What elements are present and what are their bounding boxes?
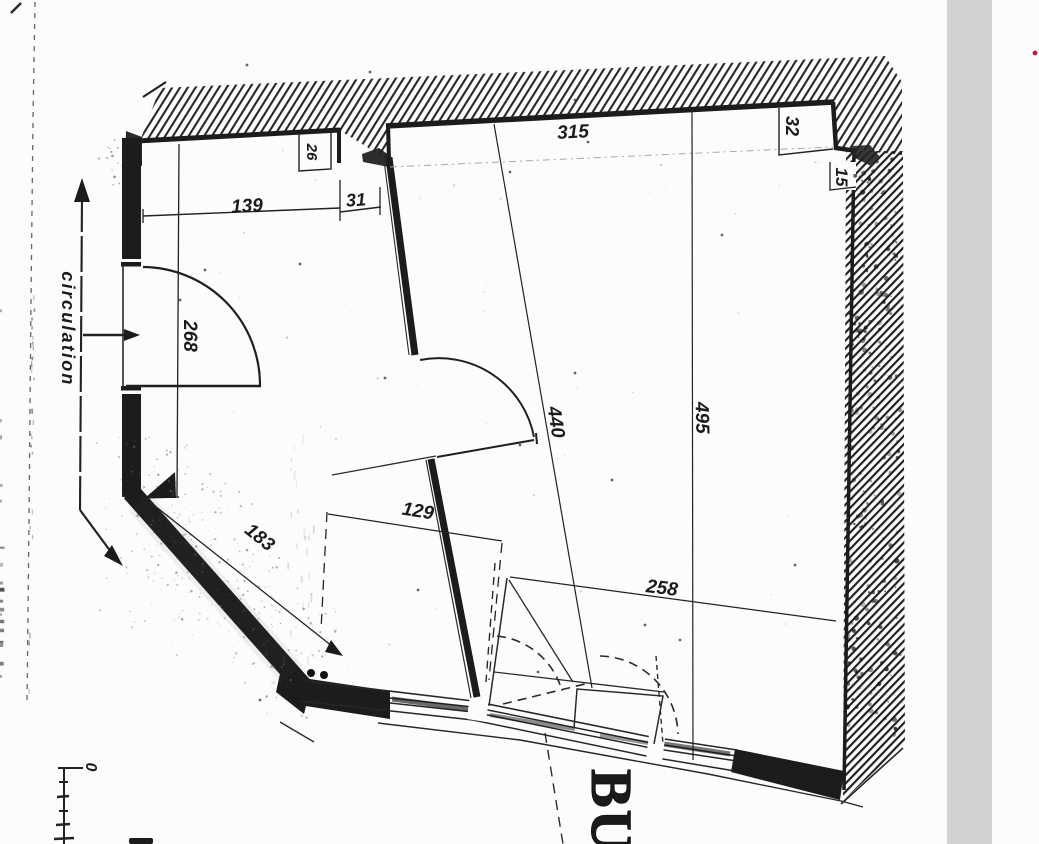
svg-text:315: 315 — [557, 121, 590, 144]
svg-text:268: 268 — [179, 319, 200, 352]
svg-text:BU: BU — [579, 769, 644, 844]
svg-text:26: 26 — [303, 143, 320, 161]
svg-text:circulation: circulation — [58, 271, 78, 386]
svg-text:258: 258 — [644, 576, 679, 601]
svg-text:495: 495 — [690, 401, 712, 435]
svg-text:0: 0 — [82, 763, 99, 772]
svg-text:139: 139 — [231, 195, 264, 218]
svg-text:15: 15 — [832, 168, 851, 187]
svg-text:32: 32 — [782, 116, 802, 136]
svg-text:31: 31 — [345, 189, 366, 210]
